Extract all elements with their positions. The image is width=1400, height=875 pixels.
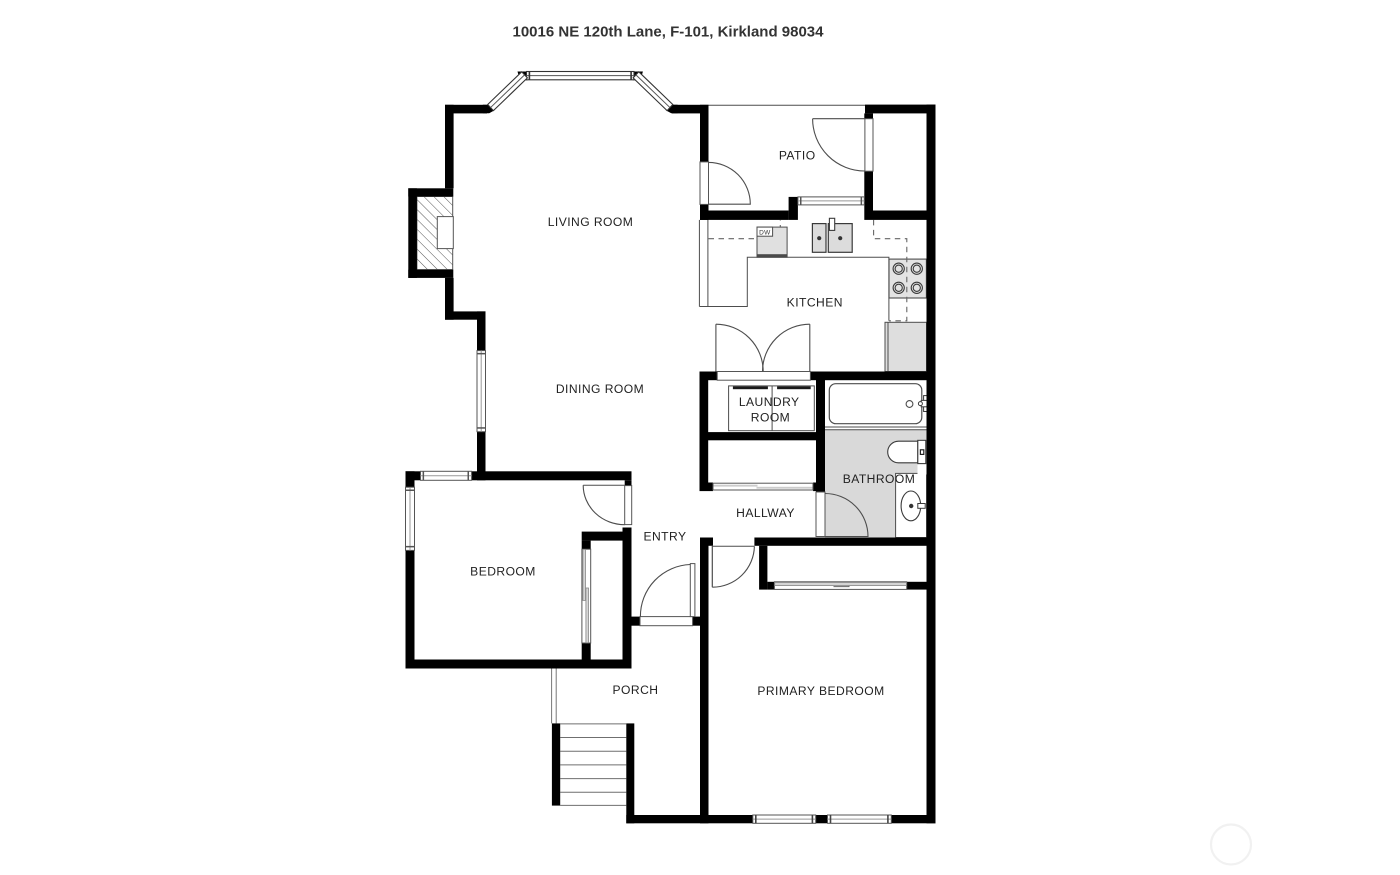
svg-text:KITCHEN: KITCHEN xyxy=(787,296,843,310)
svg-text:ENTRY: ENTRY xyxy=(643,530,686,544)
svg-text:ROOM: ROOM xyxy=(751,410,790,424)
svg-text:PRIMARY BEDROOM: PRIMARY BEDROOM xyxy=(757,684,884,698)
svg-text:PATIO: PATIO xyxy=(779,149,816,163)
svg-text:DINING ROOM: DINING ROOM xyxy=(556,382,644,396)
svg-text:PORCH: PORCH xyxy=(613,683,659,697)
svg-text:BEDROOM: BEDROOM xyxy=(470,564,536,578)
svg-text:DW: DW xyxy=(759,230,771,237)
svg-text:10016 NE 120th Lane, F-101, Ki: 10016 NE 120th Lane, F-101, Kirkland 980… xyxy=(513,24,825,41)
svg-text:BATHROOM: BATHROOM xyxy=(843,472,916,486)
svg-text:HALLWAY: HALLWAY xyxy=(736,506,795,520)
svg-text:LIVING ROOM: LIVING ROOM xyxy=(548,215,634,229)
svg-text:LAUNDRY: LAUNDRY xyxy=(739,395,800,409)
